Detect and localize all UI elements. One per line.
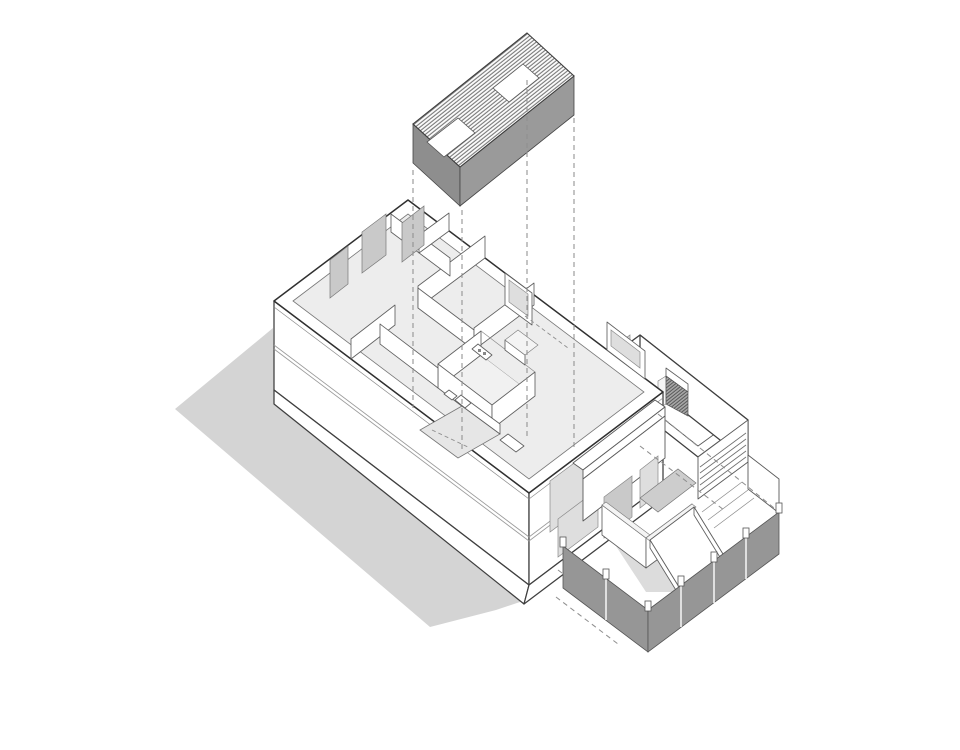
fence-post-icon [711,552,717,562]
architectural-drawing-canvas [0,0,960,750]
fence-post-icon [678,576,684,586]
stove-burner-2 [483,352,486,355]
fence-post-icon [776,503,782,513]
axonometric-house-diagram [0,0,960,750]
stove-burner-1 [478,349,481,352]
fence-post-icon [743,528,749,538]
fence-post-icon [603,569,609,579]
fence-post-icon [560,537,566,547]
fence-post-icon [645,601,651,611]
